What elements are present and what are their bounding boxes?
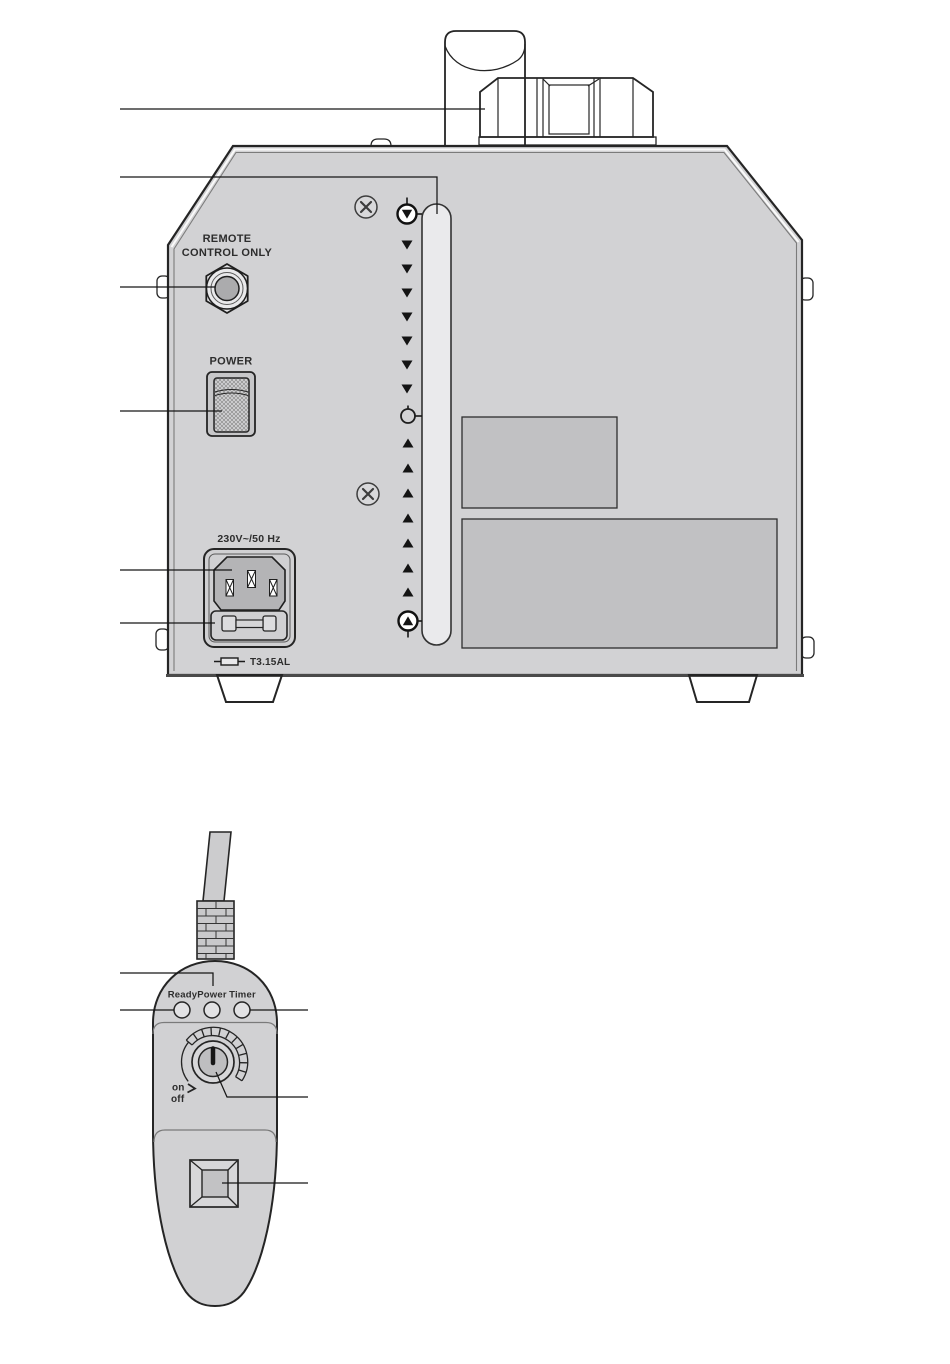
power-switch-label: POWER: [209, 356, 252, 368]
screw-icon: [357, 483, 379, 505]
power-led-label: Power: [197, 990, 227, 1001]
duct-base-plate: [479, 137, 656, 145]
fog-machine-manual-illustration: REMOTE CONTROL ONLY POWER 230V~/50 Hz: [0, 0, 950, 1364]
duct-ribbed-cap: [480, 78, 653, 137]
mains-inlet: 230V~/50 Hz T3.15AL: [204, 533, 295, 668]
ready-led: [174, 1002, 190, 1018]
timer-led: [234, 1002, 250, 1018]
sticker-small: [462, 417, 617, 508]
manual-page: REMOTE CONTROL ONLY POWER 230V~/50 Hz: [0, 0, 950, 1364]
fuse-drawer: [211, 611, 287, 640]
remote-leds: Ready Power Timer: [168, 990, 256, 1019]
fuse-symbol-body: [221, 658, 238, 665]
sight-tube: [422, 204, 451, 645]
remote-control-view: Ready Power Timer: [120, 832, 308, 1306]
foot-right: [689, 675, 757, 702]
fuse-rating-label: T3.15AL: [250, 657, 290, 668]
cable-strain-relief: [197, 901, 234, 959]
duct-rim-arc: [445, 44, 525, 71]
ready-led-label: Ready: [168, 990, 198, 1001]
knob-off-label: off: [171, 1094, 185, 1105]
mains-rating-label: 230V~/50 Hz: [217, 533, 280, 545]
rocker-texture: [214, 378, 249, 432]
timer-led-label: Timer: [229, 990, 256, 1001]
output-duct: [445, 31, 656, 146]
fog-machine-rear-view: REMOTE CONTROL ONLY POWER 230V~/50 Hz: [120, 31, 814, 702]
screw-icon: [355, 196, 377, 218]
knob-on-label: on: [172, 1083, 185, 1094]
remote-cable: [197, 832, 234, 959]
sticker-large: [462, 519, 777, 648]
foot-left: [217, 675, 282, 702]
power-led: [204, 1002, 220, 1018]
jack-hole: [215, 277, 239, 301]
remote-jack-label-line2: CONTROL ONLY: [182, 247, 273, 259]
duct-cap-ribs: [498, 78, 633, 137]
remote-jack-label-line1: REMOTE: [203, 233, 252, 245]
